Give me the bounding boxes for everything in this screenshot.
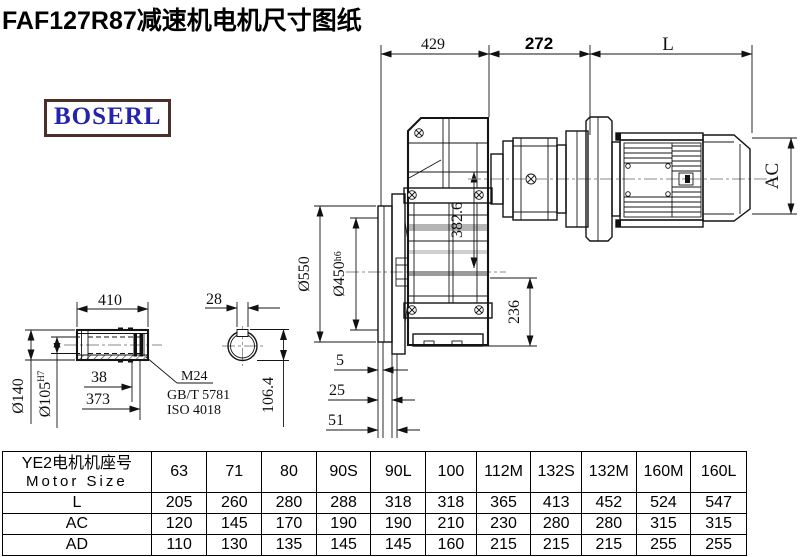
table-row-label: AC: [3, 514, 152, 535]
table-cell: 318: [426, 493, 477, 514]
dim-38-label: 38: [91, 369, 107, 386]
table-col-header: 63: [151, 452, 207, 493]
table-cell: 255: [691, 535, 747, 556]
table-cell: 210: [426, 514, 477, 535]
table-cell: 315: [691, 514, 747, 535]
dim-373-label: 373: [86, 391, 110, 408]
motor-size-table: YE2电机机座号 Motor Size 63 71 80 90S 90L 100…: [2, 451, 747, 556]
housing-bolts: [408, 129, 484, 315]
table-col-header: 100: [426, 452, 477, 493]
table-cell: 110: [151, 535, 207, 556]
table-row-L: L 205 260 280 288 318 318 365 413 452 52…: [3, 493, 747, 514]
table-cell: 190: [371, 514, 426, 535]
table-cell: 135: [262, 535, 317, 556]
dim-51-label: 51: [328, 412, 344, 429]
table-cell: 120: [151, 514, 207, 535]
drawing-sheet: FAF127R87减速机电机尺寸图纸 BOSERL 429 272 L: [0, 0, 800, 557]
table-cell: 215: [531, 535, 582, 556]
dim-410-label: 410: [98, 292, 122, 309]
table-cell: 145: [207, 514, 262, 535]
dim-140-label: Ø140: [10, 378, 27, 414]
table-cell: 524: [636, 493, 691, 514]
dim-236-label: 236: [506, 300, 523, 324]
dim-L-label: L: [662, 34, 674, 55]
table-cell: 413: [531, 493, 582, 514]
standard-iso-label: ISO 4018: [167, 403, 221, 418]
table-cell: 145: [316, 535, 371, 556]
table-cell: 288: [316, 493, 371, 514]
dim-ac-label: AC: [762, 163, 783, 189]
table-cell: 145: [371, 535, 426, 556]
flange-diameter-dims: Ø550 Ø450h6: [296, 206, 378, 342]
dim-28-label: 28: [206, 291, 222, 308]
table-cell: 170: [262, 514, 317, 535]
hollow-shaft-detail: 410 Ø140 Ø105H7 38 373 M24 GB/T 5781: [10, 292, 230, 428]
dim-450h6-label: Ø450h6: [331, 251, 348, 297]
table-col-header: 160M: [636, 452, 691, 493]
table-header-row: YE2电机机座号 Motor Size 63 71 80 90S 90L 100…: [3, 452, 747, 493]
header-cn: YE2电机机座号: [3, 454, 151, 473]
table-row-label: L: [3, 493, 152, 514]
table-row-AD: AD 110 130 135 145 145 160 215 215 215 2…: [3, 535, 747, 556]
table-cell: 215: [581, 535, 636, 556]
table-col-header: 80: [262, 452, 317, 493]
table-cell: 318: [371, 493, 426, 514]
table-col-header: 71: [207, 452, 262, 493]
header-en: Motor Size: [3, 473, 151, 491]
table-cell: 315: [636, 514, 691, 535]
table-row-label: AD: [3, 535, 152, 556]
table-col-header: 90S: [316, 452, 371, 493]
table-cell: 547: [691, 493, 747, 514]
table-cell: 280: [531, 514, 582, 535]
table-col-header: 112M: [476, 452, 531, 493]
table-row-AC: AC 120 145 170 190 190 210 230 280 280 3…: [3, 514, 747, 535]
table-cell: 230: [476, 514, 531, 535]
dim-272-label: 272: [525, 34, 553, 53]
flange-step-dims: 5 25 51: [326, 342, 420, 438]
table-cell: 280: [581, 514, 636, 535]
dim-429-label: 429: [421, 36, 445, 53]
table-col-header: 160L: [691, 452, 747, 493]
standard-gbt-label: GB/T 5781: [167, 388, 230, 403]
gearbox-housing: 382.6 236: [404, 118, 537, 346]
table-cell: 255: [636, 535, 691, 556]
dim-25-label: 25: [329, 382, 345, 399]
table-cell: 452: [581, 493, 636, 514]
ac-dimension: AC: [752, 138, 797, 214]
table-cell: 280: [262, 493, 317, 514]
thread-callout-label: M24: [181, 369, 207, 384]
dim-105h7-label: Ø105H7: [36, 370, 54, 417]
table-col-header: 132S: [531, 452, 582, 493]
table-col-header: 132M: [581, 452, 636, 493]
table-cell: 190: [316, 514, 371, 535]
dim-5-label: 5: [336, 352, 344, 369]
table-col-header: 90L: [371, 452, 426, 493]
table-cell: 130: [207, 535, 262, 556]
table-cell: 215: [476, 535, 531, 556]
table-cell: 365: [476, 493, 531, 514]
dim-106-label: 106.4: [260, 377, 277, 413]
technical-drawing: 429 272 L Ø550 Ø450h6: [0, 0, 800, 450]
dim-382-label: 382.6: [449, 202, 466, 238]
dim-550-label: Ø550: [296, 256, 313, 292]
table-cell: 260: [207, 493, 262, 514]
table-cell: 205: [151, 493, 207, 514]
table-header-motor-size: YE2电机机座号 Motor Size: [3, 452, 152, 493]
table-cell: 160: [426, 535, 477, 556]
